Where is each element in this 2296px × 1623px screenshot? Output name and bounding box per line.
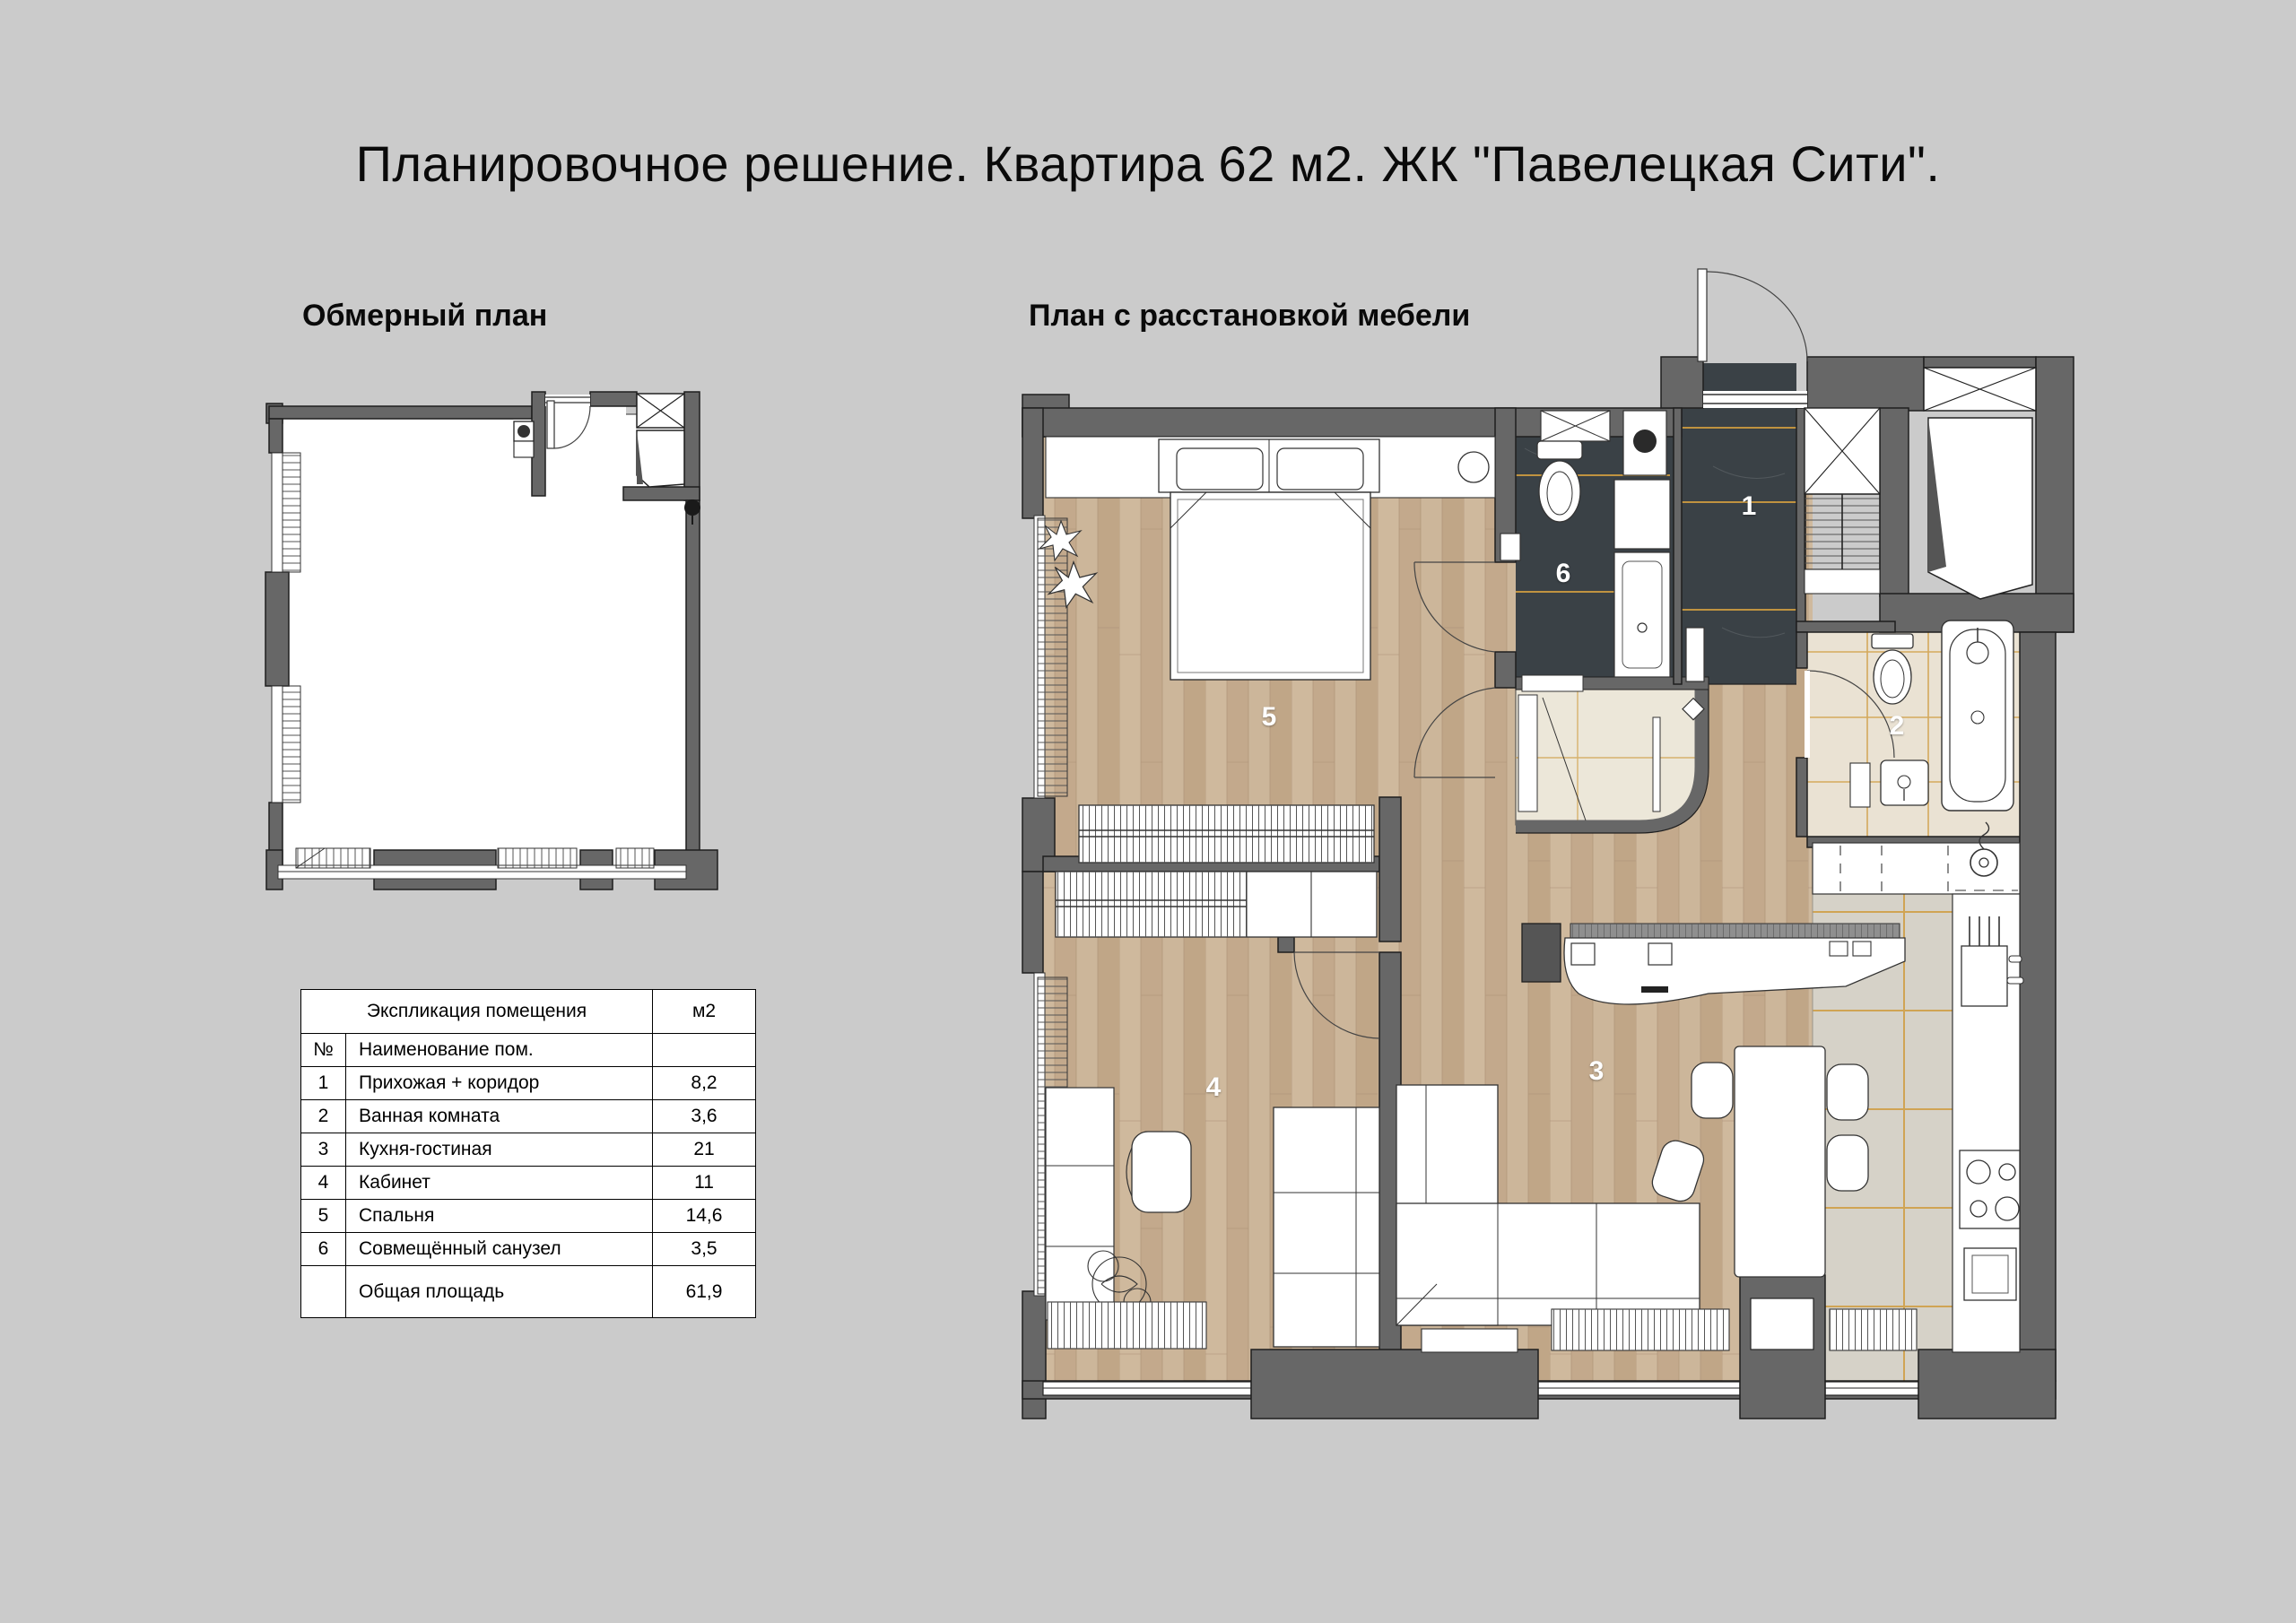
table-row: 1 Прихожая + коридор 8,2 [301,1067,756,1100]
col-name-header: Наименование пом. [346,1034,653,1067]
furniture-plan-drawing [1009,260,2081,1426]
wardrobes [1056,805,1377,937]
table-total-row: Общая площадь 61,9 [301,1266,756,1318]
vent-shaft-icons [637,394,684,487]
table-row: 6 Совмещённый санузел 3,5 [301,1233,756,1266]
shower [1516,675,1709,833]
page: { "title": "Планировочное решение. Кварт… [0,0,2296,1623]
table-unit-header: м2 [653,990,756,1034]
measurement-plan [260,386,722,910]
left-plan-title: Обмерный план [302,299,547,334]
column-casing [1751,1298,1813,1350]
table-row: 3 Кухня-гостиная 21 [301,1133,756,1167]
table-row: 2 Ванная комната 3,6 [301,1100,756,1133]
door-post [1686,628,1704,681]
page-title: Планировочное решение. Квартира 62 м2. Ж… [0,135,2296,193]
stove-icon [1960,1150,2020,1228]
hallway-closet [1805,408,1880,594]
table-row: 4 Кабинет 11 [301,1167,756,1200]
vent-unit-icon [514,421,534,457]
explication-table: Экспликация помещения м2 № Наименование … [300,989,756,1318]
measurement-plan-drawing [260,386,722,910]
furniture-plan [1009,260,2081,1426]
shaft-icons [1924,368,2036,599]
total-label: Общая площадь [346,1266,653,1318]
table-row: 5 Спальня 14,6 [301,1200,756,1233]
table-header: Экспликация помещения [301,990,653,1034]
room-interior [278,404,691,876]
total-area: 61,9 [653,1266,756,1318]
col-num-header: № [301,1034,346,1067]
utensil-holder-icon [1961,946,2007,1006]
